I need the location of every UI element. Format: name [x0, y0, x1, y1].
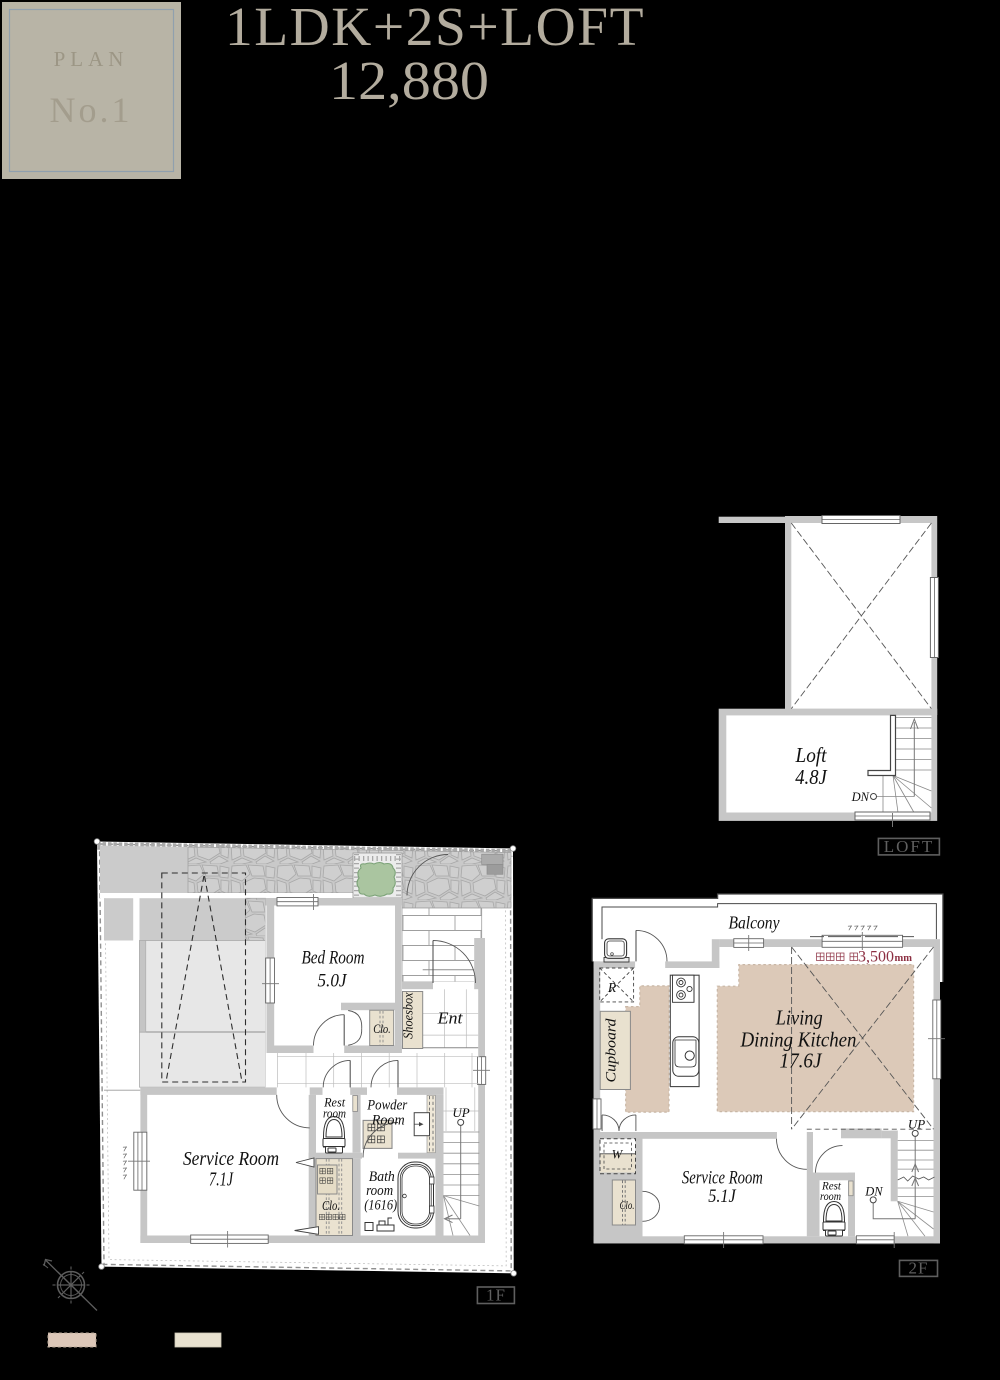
svg-text:Balcony: Balcony: [729, 913, 780, 933]
svg-text:Living: Living: [775, 1006, 823, 1030]
svg-text:3,500: 3,500: [858, 949, 894, 966]
svg-text:W: W: [612, 1148, 624, 1162]
svg-text:PLAN: PLAN: [54, 47, 129, 71]
svg-text:R: R: [607, 980, 617, 995]
svg-text:DN: DN: [864, 1185, 883, 1199]
svg-text:5.1J: 5.1J: [708, 1186, 737, 1207]
svg-text:5.0J: 5.0J: [318, 971, 348, 992]
svg-text:Powder: Powder: [366, 1097, 407, 1113]
svg-text:2F: 2F: [909, 1258, 929, 1277]
svg-text:12,880: 12,880: [329, 50, 489, 111]
svg-text:LOFT: LOFT: [884, 837, 935, 856]
svg-text:mm: mm: [895, 953, 913, 964]
svg-text:1LDK+2S+LOFT: 1LDK+2S+LOFT: [225, 0, 645, 57]
svg-text:UP: UP: [908, 1116, 925, 1131]
svg-text:Bed Room: Bed Room: [302, 948, 365, 969]
svg-text:No.1: No.1: [50, 90, 133, 130]
svg-text:Ent: Ent: [436, 1009, 463, 1028]
svg-text:Clo.: Clo.: [620, 1200, 635, 1212]
svg-text:4.8J: 4.8J: [795, 765, 828, 789]
svg-text:7.1J: 7.1J: [209, 1169, 234, 1191]
svg-text:UP: UP: [452, 1105, 469, 1120]
svg-text:Clo.: Clo.: [373, 1021, 391, 1036]
svg-text:room: room: [820, 1189, 841, 1203]
svg-text:1F: 1F: [486, 1286, 506, 1305]
svg-text:Loft: Loft: [795, 743, 828, 767]
svg-text:DN: DN: [851, 790, 870, 804]
svg-text:room: room: [323, 1106, 346, 1121]
svg-text:Room: Room: [371, 1112, 405, 1128]
svg-text:17.6J: 17.6J: [780, 1048, 824, 1072]
svg-text:(1616): (1616): [364, 1198, 397, 1214]
svg-text:Service Room: Service Room: [183, 1148, 279, 1170]
svg-text:Clo.: Clo.: [322, 1198, 340, 1213]
svg-text:Shoesbox: Shoesbox: [401, 992, 416, 1039]
svg-text:Cupboard: Cupboard: [604, 1018, 620, 1083]
